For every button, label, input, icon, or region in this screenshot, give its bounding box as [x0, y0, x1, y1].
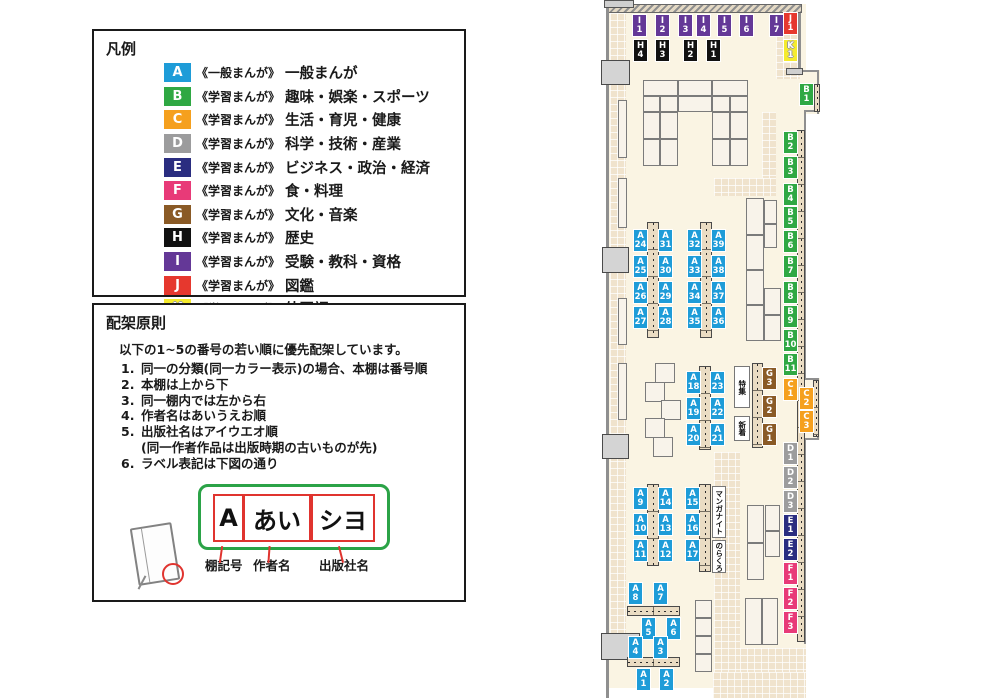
shelf-label-number: 7: [658, 594, 664, 603]
shelf-label-D1: D1: [784, 443, 797, 464]
bookshelf: [695, 636, 712, 654]
wall-block: [604, 0, 634, 8]
shelf-label-A27: A27: [634, 307, 647, 328]
bookshelf: [764, 224, 777, 248]
shelf-label-number: 1: [788, 454, 794, 463]
shelf-label-number: 4: [701, 26, 707, 35]
shelf-label-A19: A19: [687, 398, 700, 419]
shelf-label-B1: B1: [800, 84, 813, 105]
shelf-label-A23: A23: [711, 372, 724, 393]
shelf-label-number: 1: [788, 390, 794, 399]
bookshelf: [712, 139, 730, 166]
bookshelf: [618, 298, 627, 345]
wall: [804, 438, 819, 440]
shelf-label-number: 3: [788, 502, 794, 511]
shelf-label-A10: A10: [634, 514, 647, 535]
shelf-label-C2: C2: [800, 388, 813, 409]
shelf-strip: [752, 363, 763, 448]
shelf-label-C1: C1: [784, 379, 797, 400]
door: [602, 434, 629, 459]
shelf-label-number: 30: [660, 267, 672, 276]
shelf-label-number: 2: [788, 478, 794, 487]
shelf-label-number: 5: [788, 218, 794, 227]
shelf-label-number: 19: [688, 409, 700, 418]
shelf-label-A31: A31: [659, 230, 672, 251]
shelf-label-number: 8: [788, 293, 794, 302]
bookshelf: [678, 96, 712, 112]
shelf-label-B11: B11: [784, 354, 797, 375]
shelf-label-A24: A24: [634, 230, 647, 251]
wall: [798, 13, 801, 70]
shelf-label-number: 10: [785, 341, 797, 350]
wall: [606, 8, 609, 698]
bookshelf: [730, 96, 748, 112]
bookshelf: [618, 363, 627, 420]
shelf-label-A37: A37: [712, 282, 725, 303]
shelf-label-B3: B3: [784, 157, 797, 178]
shelf-label-A5: A5: [642, 618, 655, 639]
shelf-label-number: 1: [788, 51, 794, 60]
floor-path: [740, 648, 806, 674]
shelf-label-A28: A28: [659, 307, 672, 328]
shelf-label-A6: A6: [667, 618, 680, 639]
shelf-label-number: 17: [687, 551, 699, 560]
shelf-label-H1: H1: [707, 40, 720, 61]
shelf-label-number: 3: [683, 26, 689, 35]
shelf-label-number: 1: [804, 95, 810, 104]
shelf-label-number: 22: [712, 409, 724, 418]
shelf-label-number: 3: [804, 422, 810, 431]
shelf-label-B7: B7: [784, 256, 797, 277]
bookshelf: [678, 80, 712, 96]
shelf-label-A32: A32: [688, 230, 701, 251]
bookshelf: [746, 235, 764, 270]
shelf-label-D2: D2: [784, 467, 797, 488]
shelf-label-A18: A18: [687, 372, 700, 393]
shelf-label-number: 34: [689, 293, 701, 302]
shelf-label-A8: A8: [629, 583, 642, 604]
bookshelf: [660, 112, 678, 139]
shelf-label-F1: F1: [784, 563, 797, 584]
shelf-label-number: 1: [788, 526, 794, 535]
shelf-label-F3: F3: [784, 612, 797, 633]
shelf-label-B6: B6: [784, 231, 797, 252]
shelf-label-number: 5: [722, 26, 728, 35]
shelf-label-number: 23: [712, 383, 724, 392]
shelf-label-number: 3: [788, 623, 794, 632]
shelf-label-A26: A26: [634, 282, 647, 303]
bookshelf: [747, 543, 764, 580]
shelf-label-I5: I5: [718, 15, 731, 36]
shelf-label-number: 4: [638, 51, 644, 60]
shelf-label-C3: C3: [800, 411, 813, 432]
shelf-label-number: 2: [688, 51, 694, 60]
shelf-label-number: 2: [660, 26, 666, 35]
bookshelf: [660, 139, 678, 166]
bookshelf: [730, 112, 748, 139]
bookshelf: [618, 100, 627, 158]
shelf-label-number: 3: [788, 168, 794, 177]
shelf-label-number: 32: [689, 241, 701, 250]
shelf-label-A34: A34: [688, 282, 701, 303]
shelf-label-number: 4: [633, 648, 639, 657]
shelf-label-number: 37: [713, 293, 725, 302]
shelf-strip: [699, 484, 711, 572]
shelf-label-number: 6: [744, 26, 750, 35]
bookshelf: [712, 112, 730, 139]
shelf-label-number: 35: [689, 318, 701, 327]
shelf-label-A17: A17: [686, 540, 699, 561]
shelf-label-A21: A21: [711, 424, 724, 445]
shelf-label-number: 2: [767, 407, 773, 416]
shelf-label-A20: A20: [687, 424, 700, 445]
shelf-label-number: 2: [788, 599, 794, 608]
shelf-label-B9: B9: [784, 306, 797, 327]
shelf-label-H4: H4: [634, 40, 647, 61]
shelf-label-A12: A12: [659, 540, 672, 561]
bookshelf: [746, 270, 764, 305]
shelf-label-number: 9: [638, 499, 644, 508]
shelf-label-A35: A35: [688, 307, 701, 328]
shelf-label-A30: A30: [659, 256, 672, 277]
shelf-label-number: 2: [788, 550, 794, 559]
bookshelf: [764, 315, 781, 341]
shelf-label-number: 2: [664, 680, 670, 689]
shelf-label-A39: A39: [712, 230, 725, 251]
shelf-strip: [647, 484, 659, 566]
shelf-label-B4: B4: [784, 184, 797, 205]
bookshelf: [730, 139, 748, 166]
shelf-label-number: 7: [774, 26, 780, 35]
shelf-label-number: 1: [788, 24, 794, 33]
shelf-label-number: 3: [658, 648, 664, 657]
shelf-label-G3: G3: [763, 368, 776, 389]
bookshelf: [745, 598, 762, 645]
shelf-label-number: 20: [688, 435, 700, 444]
bookshelf: [762, 598, 778, 645]
shelf-label-E1: E1: [784, 515, 797, 536]
wall-hatched: [608, 4, 802, 13]
floor-path: [714, 178, 776, 196]
bookshelf: [660, 96, 678, 112]
floor-path: [713, 672, 806, 698]
bookshelf: [764, 288, 781, 315]
shelf-label-number: 27: [635, 318, 647, 327]
shelf-label-A14: A14: [659, 488, 672, 509]
bookshelf: [765, 505, 780, 531]
shelf-label-number: 36: [713, 318, 725, 327]
shelf-strip: [814, 84, 820, 112]
bookshelf: [653, 437, 673, 457]
bookshelf: [643, 139, 660, 166]
bookshelf: [712, 80, 748, 96]
bookshelf: [643, 112, 660, 139]
shelf-label-I3: I3: [679, 15, 692, 36]
shelf-label-I6: I6: [740, 15, 753, 36]
wall-block: [786, 68, 803, 75]
shelf-strip: [647, 222, 659, 338]
bookshelf: [764, 200, 777, 224]
shelf-label-F2: F2: [784, 588, 797, 609]
shelf-label-B10: B10: [784, 330, 797, 351]
bookshelf: [695, 618, 712, 636]
shelf-label-number: 33: [689, 267, 701, 276]
shelf-label-number: 39: [713, 241, 725, 250]
bookshelf: [765, 531, 780, 557]
shelf-label-number: 1: [641, 680, 647, 689]
shelf-label-A25: A25: [634, 256, 647, 277]
shelf-label-H3: H3: [656, 40, 669, 61]
shelf-label-A2: A2: [660, 669, 673, 690]
door: [601, 60, 630, 85]
bookshelf: [645, 418, 665, 438]
shelf-strip: [699, 366, 711, 450]
bookshelf: [655, 363, 675, 383]
shelf-strip: [627, 657, 680, 667]
shelf-label-number: 5: [646, 629, 652, 638]
shelf-label-I2: I2: [656, 15, 669, 36]
bookshelf: [661, 400, 681, 420]
shelf-label-number: 16: [687, 525, 699, 534]
shelf-label-number: 29: [660, 293, 672, 302]
shelf-label-number: 3: [660, 51, 666, 60]
shelf-label-A3: A3: [654, 637, 667, 658]
shelf-label-number: 8: [633, 594, 639, 603]
shelf-label-A33: A33: [688, 256, 701, 277]
shelf-label-I4: I4: [697, 15, 710, 36]
shelf-label-number: 3: [767, 379, 773, 388]
shelf-label-number: 6: [788, 242, 794, 251]
shelf-label-A9: A9: [634, 488, 647, 509]
shelf-label-A1: A1: [637, 669, 650, 690]
shelf-label-number: 15: [687, 499, 699, 508]
shelf-label-number: 1: [788, 574, 794, 583]
shelf-label-number: 18: [688, 383, 700, 392]
shelf-label-number: 11: [635, 551, 647, 560]
shelf-label-B5: B5: [784, 207, 797, 228]
shelf-label-number: 1: [767, 435, 773, 444]
shelf-label-number: 2: [788, 143, 794, 152]
shelf-label-number: 12: [660, 551, 672, 560]
shelf-label-G1: G1: [763, 424, 776, 445]
shelf-strip: [627, 606, 680, 616]
shelf-label-A11: A11: [634, 540, 647, 561]
shelf-label-A16: A16: [686, 514, 699, 535]
shelf-label-number: 24: [635, 241, 647, 250]
shelf-label-number: 2: [804, 399, 810, 408]
shelf-label-K1: K1: [784, 40, 797, 61]
shelf-label-number: 7: [788, 267, 794, 276]
area-新着: 新着: [734, 416, 750, 441]
area-特集: 特集: [734, 366, 750, 408]
shelf-label-number: 4: [788, 195, 794, 204]
bookshelf: [746, 305, 764, 341]
bookshelf: [712, 96, 730, 112]
shelf-label-number: 11: [785, 365, 797, 374]
shelf-strip: [797, 130, 805, 642]
shelf-label-number: 28: [660, 318, 672, 327]
shelf-label-number: 21: [712, 435, 724, 444]
shelf-label-A22: A22: [711, 398, 724, 419]
shelf-label-A4: A4: [629, 637, 642, 658]
shelf-label-number: 31: [660, 241, 672, 250]
shelf-label-I1: I1: [633, 15, 646, 36]
floor-path: [762, 112, 776, 180]
shelf-label-A29: A29: [659, 282, 672, 303]
bookshelf: [643, 96, 660, 112]
shelf-label-A13: A13: [659, 514, 672, 535]
door: [602, 247, 629, 273]
bookshelf: [643, 80, 678, 96]
area-のらくろ: のらくろ: [712, 540, 726, 573]
shelf-label-number: 14: [660, 499, 672, 508]
shelf-label-number: 26: [635, 293, 647, 302]
bookshelf: [695, 600, 712, 618]
shelf-strip: [700, 222, 712, 338]
bookshelf: [618, 178, 627, 228]
shelf-label-E2: E2: [784, 539, 797, 560]
shelf-label-number: 38: [713, 267, 725, 276]
shelf-label-J1: J1: [784, 13, 797, 34]
shelf-label-A36: A36: [712, 307, 725, 328]
shelf-label-B2: B2: [784, 132, 797, 153]
shelf-label-A15: A15: [686, 488, 699, 509]
shelf-label-number: 6: [671, 629, 677, 638]
shelf-label-G2: G2: [763, 396, 776, 417]
shelf-label-A38: A38: [712, 256, 725, 277]
shelf-label-H2: H2: [684, 40, 697, 61]
shelf-label-number: 25: [635, 267, 647, 276]
bookshelf: [746, 198, 764, 235]
shelf-label-number: 10: [635, 525, 647, 534]
shelf-label-D3: D3: [784, 491, 797, 512]
shelf-strip: [813, 380, 819, 437]
shelf-label-I7: I7: [770, 15, 783, 36]
bookshelf: [695, 654, 712, 672]
shelf-label-number: 1: [711, 51, 717, 60]
shelf-label-number: 9: [788, 317, 794, 326]
shelf-label-A7: A7: [654, 583, 667, 604]
shelf-label-number: 1: [637, 26, 643, 35]
bookshelf: [645, 382, 665, 402]
page: 凡例 A《一般まんが》一般まんがB《学習まんが》趣味・娯楽・スポーツC《学習まん…: [0, 0, 1000, 700]
floor-map: 特集新着マンガナイトのらくろI1I2I3I4I5I6I7J1H4H3H2H1K1…: [0, 0, 1000, 700]
area-マンガナイト: マンガナイト: [712, 486, 726, 538]
shelf-label-B8: B8: [784, 282, 797, 303]
shelf-label-number: 13: [660, 525, 672, 534]
bookshelf: [747, 505, 764, 543]
